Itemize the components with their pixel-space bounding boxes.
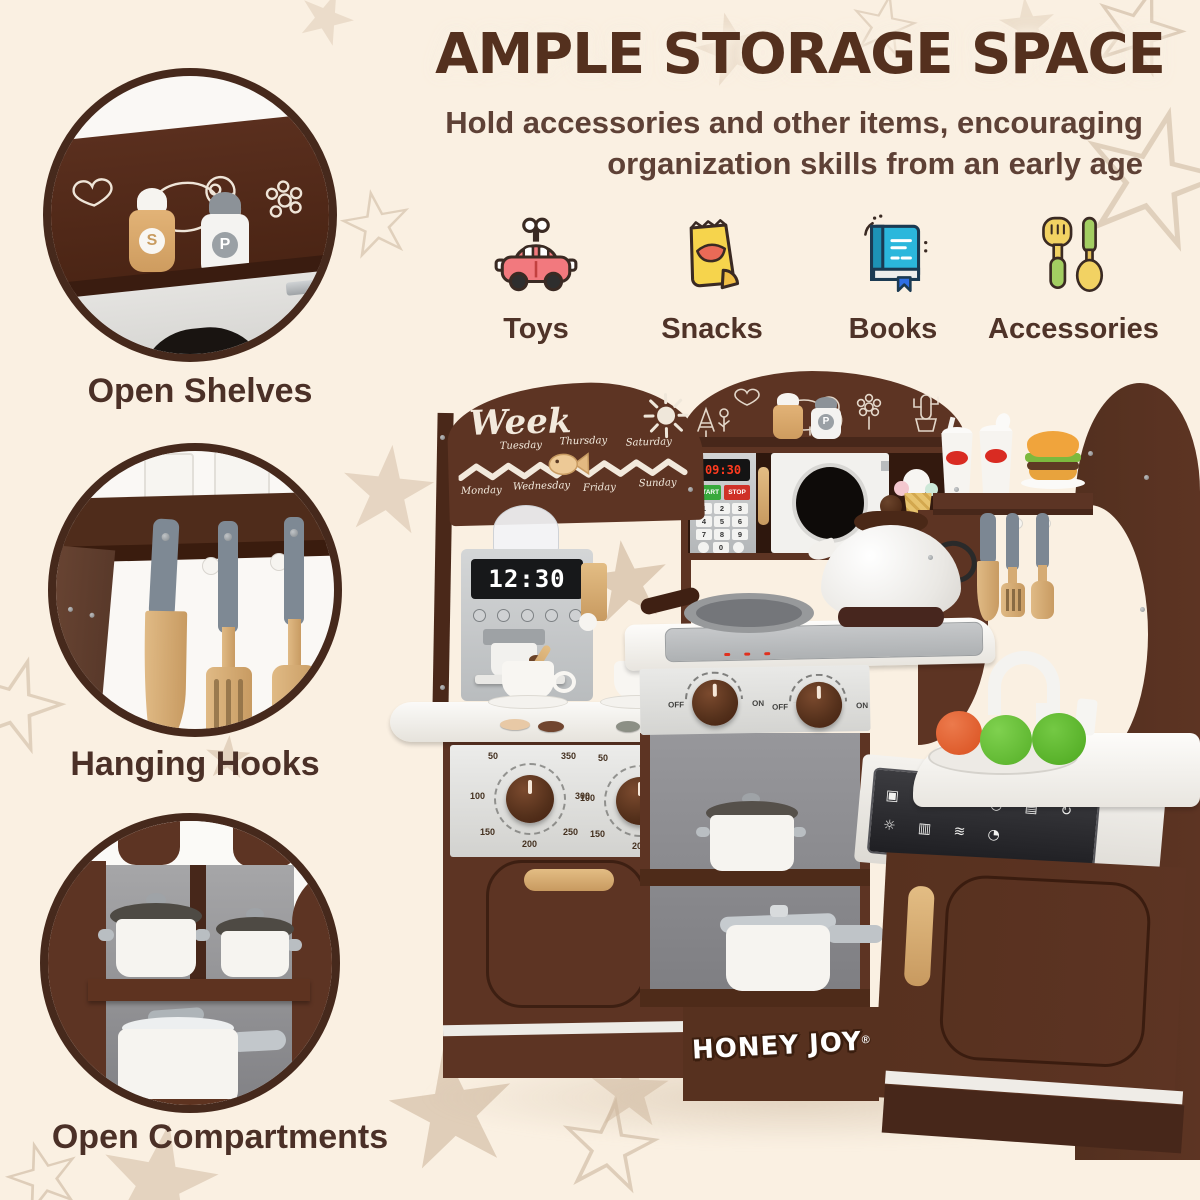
salt-shaker [773,393,803,439]
dial-mark: 50 [598,753,608,763]
pepper-letter: P [212,232,238,258]
category-label: Toys [456,313,616,346]
category-snacks: Snacks [632,212,792,346]
toy-teacup-set [488,653,574,711]
toy-drink-cup [940,417,974,493]
category-label: Books [813,313,973,346]
pepper-letter: P [818,414,834,430]
microwave-key: 6 [732,516,748,527]
dishwasher-door-outline [938,874,1152,1069]
brand-registered-mark: ® [861,1034,870,1046]
toy-pan [216,917,306,981]
toy-burger [1021,437,1087,493]
coffee-buttons [473,609,583,623]
microwave-handle [758,467,769,525]
toy-pot [110,903,210,981]
screw [1144,475,1149,480]
pepper-shaker: P [811,397,841,439]
hook-strap [980,513,996,565]
microwave-stop-button: STOP [724,485,750,500]
microwave-key: 2 [714,503,730,514]
product-promo-image: ★ ☆ ☆ ★ ☆ ★ ☆ ★ ★ ☆ ★ ★ ☆ ★ ☆ ★ AMPLE ST… [0,0,1200,1200]
microwave-timer-key [733,542,744,553]
brand-logo: HONEY JOY® [690,1026,871,1065]
category-label: Snacks [632,313,792,346]
brand-logo-text: HONEY JOY [691,1027,862,1066]
mid-base: HONEY JOY® [683,1007,879,1101]
dial-mark: 350 [561,751,576,761]
toy-paddle [1031,581,1054,619]
mid-cabinet [640,733,870,1007]
subtitle-line2: organization skills from an early age [383,143,1143,184]
hook-strap [148,518,179,617]
screw [1088,451,1093,456]
microwave-key: 9 [732,529,748,540]
callout-photo-hanging-hooks [48,443,342,737]
oven-dial: 50 350 100 300 150 250 200 [478,749,582,853]
side-panel [48,544,115,737]
week-day: Monday [461,485,502,497]
callout-photo-open-compartments [40,813,340,1113]
hook-strap [1036,513,1049,569]
kettle-base-band [838,607,944,627]
toy-cookie [538,721,564,732]
toy-spatula [1001,583,1025,617]
toy-pressure-cooker [726,913,866,993]
cabinet-top-tab [233,821,297,867]
hook-strap [284,517,304,625]
dial-mark: 100 [470,791,485,801]
knob-off-label: OFF [772,702,788,711]
microwave-power-key [698,542,709,553]
microwave-clock-display: 09:30 [696,459,750,481]
oven-door-handle [524,869,614,891]
category-label: Accessories [988,313,1148,346]
category-books: Books [813,212,973,346]
toy-paddle-head [272,665,318,737]
cabinet-top-tab [118,821,180,865]
book-icon [847,212,939,304]
dial-mark: 50 [488,751,498,761]
callout-label-hanging-hooks: Hanging Hooks [30,745,360,784]
page-subtitle: Hold accessories and other items, encour… [383,102,1143,184]
toy-green-apple [1032,713,1086,765]
screw [688,487,693,492]
toy-frying-pan [640,589,820,639]
week-day: Thursday [560,435,608,447]
shelf-board [88,979,310,1001]
category-accessories: Accessories [988,212,1148,346]
appliance-window [133,321,269,362]
toy-tomato [936,711,982,755]
screw [928,555,933,560]
hook-strap [1006,513,1019,571]
knob-on-label: ON [856,701,868,710]
sun-doodle [638,388,693,443]
dishwasher-handle [904,886,935,987]
latch [286,280,317,296]
toy-green-apple [980,715,1032,765]
hinge [881,461,889,471]
microwave-key: 8 [714,529,730,540]
knob-off-label: OFF [668,700,684,709]
toy-pressure-cooker [118,1017,293,1109]
knob-on-label: ON [752,699,764,708]
hook-strap [218,521,238,633]
toy-spatula-head [206,667,252,737]
toy-cookie [500,719,530,730]
screw [954,487,959,492]
toy-kettle [816,495,981,641]
burner-knob [692,679,739,726]
callout-photo-open-shelves: S P [43,68,337,362]
burner-knob-dial: OFF ON [668,671,765,737]
coffee-clock-display: 12:30 [471,559,583,599]
week-title: Week [469,401,572,444]
salt-shaker: S [129,188,175,274]
callout-label-open-shelves: Open Shelves [40,372,360,411]
callout-label-open-compartments: Open Compartments [20,1118,420,1157]
utensils-icon [1022,212,1114,304]
dial-mark: 100 [580,793,595,803]
toy-knife-blade [143,611,187,737]
dial-mark: 150 [480,827,495,837]
subtitle-line1: Hold accessories and other items, encour… [383,102,1143,143]
decor-star: ★ [284,0,368,61]
screw [440,435,445,440]
microwave-key: 3 [732,503,748,514]
screw [1140,607,1145,612]
toy-paddle-shaft [288,619,301,671]
dial-mark: 150 [590,829,605,839]
snacks-bag-icon [666,212,758,304]
toy-car-icon [490,212,582,304]
week-day: Tuesday [500,440,542,452]
microwave-key: 5 [714,516,730,527]
dial-mark: 200 [522,839,537,849]
screw [440,685,445,690]
page-title: AMPLE STORAGE SPACE [400,22,1200,87]
toy-kitchen-product-photo: P 09:30 START STOP 1 2 3 4 5 6 7 8 9 [388,355,1200,1170]
week-day: Saturday [626,436,672,448]
toy-drink-cup [978,413,1014,493]
burner-knob [796,681,843,728]
microwave-key: 7 [696,529,712,540]
burner-knob-dial: OFF ON [772,673,869,739]
week-day: Friday [583,482,616,494]
week-day: Wednesday [513,480,571,492]
toy-pot [706,801,810,873]
category-toys: Toys [456,212,616,346]
decor-star: ☆ [328,172,425,277]
toy-cookie [616,721,640,732]
burner-knob-panel: OFF ON OFF ON [639,665,870,735]
week-day: Sunday [639,477,677,489]
fish-charm [548,449,591,480]
dial-mark: 250 [563,827,578,837]
salt-letter: S [139,228,165,254]
oven-knob [506,775,554,823]
grinder-knob [579,613,597,631]
microwave-key: 0 [713,542,729,553]
